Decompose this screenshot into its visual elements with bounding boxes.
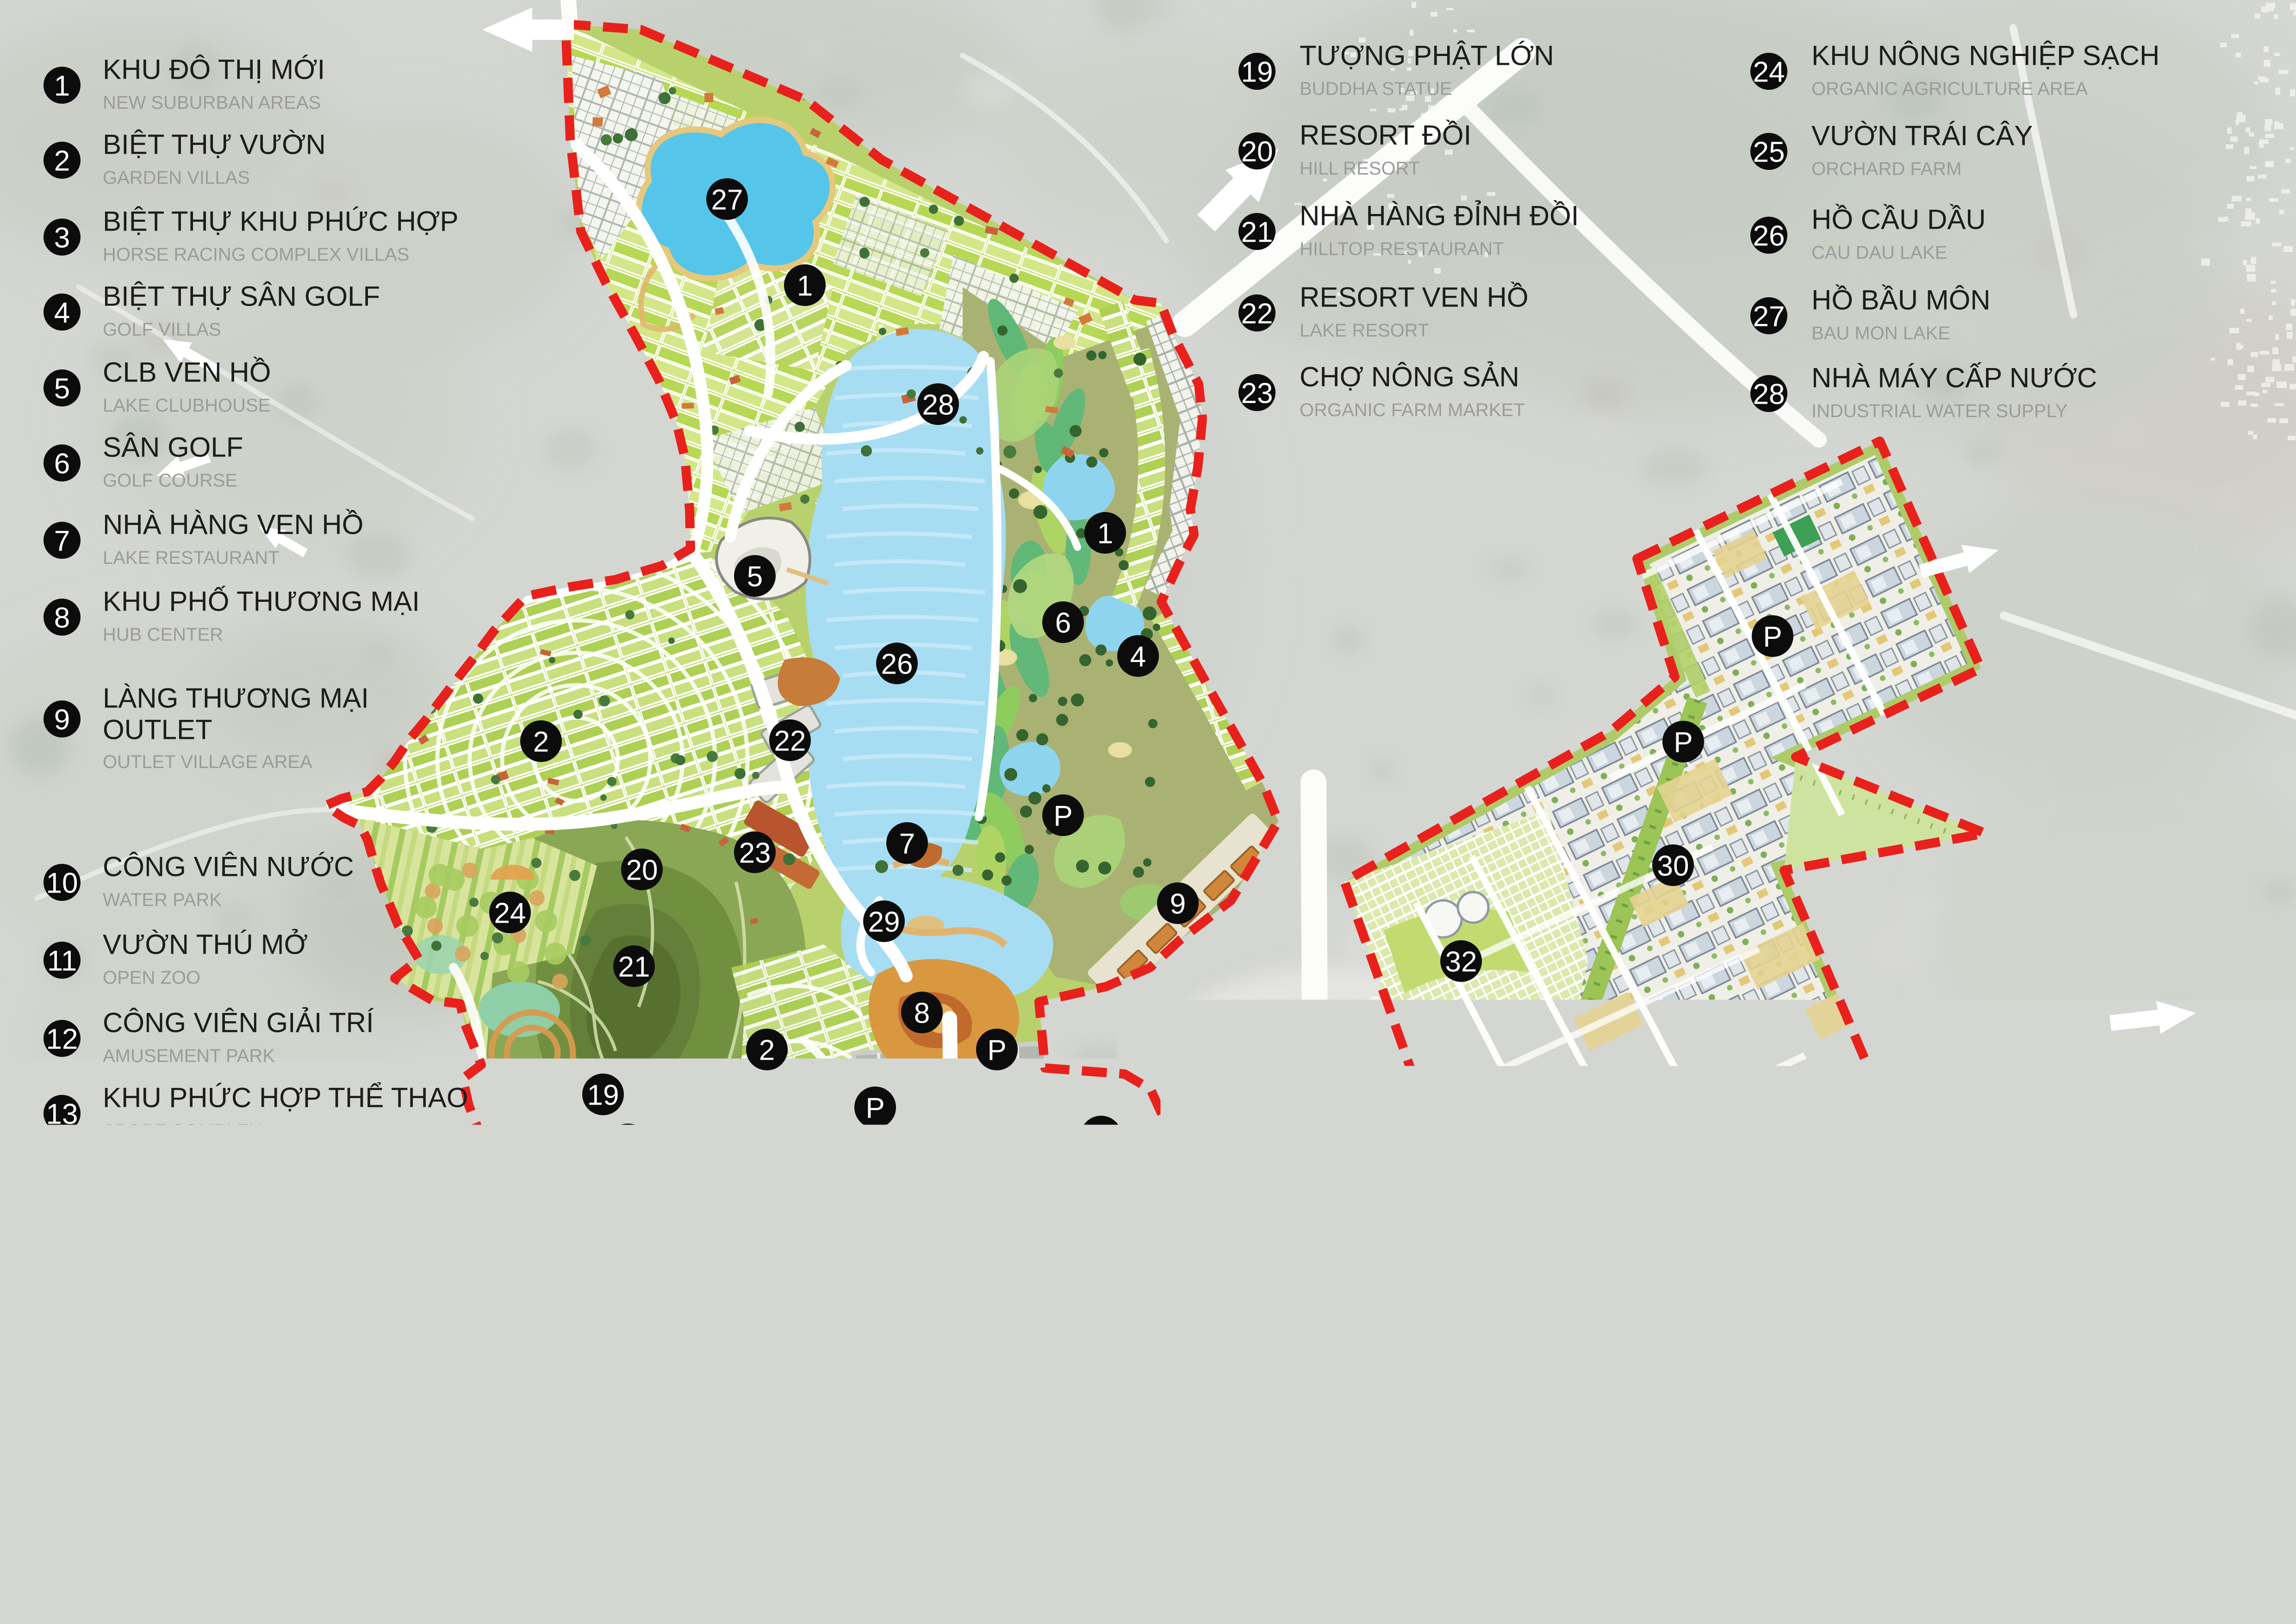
svg-text:SPORT COMPLEX: SPORT COMPLEX bbox=[103, 1121, 261, 1141]
svg-text:29: 29 bbox=[1220, 1319, 1252, 1351]
svg-text:27: 27 bbox=[711, 184, 743, 216]
svg-text:SÂN GOLF: SÂN GOLF bbox=[103, 432, 243, 463]
svg-text:VƯỜN TRÁI CÂY: VƯỜN TRÁI CÂY bbox=[1811, 120, 2033, 151]
svg-text:ORGANIC FARM MARKET: ORGANIC FARM MARKET bbox=[1300, 400, 1525, 420]
svg-text:P: P bbox=[1761, 1512, 1780, 1543]
svg-text:KHU PHỨC HỢP THỂ THAO: KHU PHỨC HỢP THỂ THAO bbox=[103, 1082, 468, 1113]
svg-text:32: 32 bbox=[1755, 1319, 1787, 1351]
svg-text:21: 21 bbox=[1241, 217, 1273, 249]
svg-text:CHUỒNG NUÔI NGỰA: CHUỒNG NUÔI NGỰA bbox=[103, 1512, 395, 1543]
svg-text:25: 25 bbox=[612, 1130, 644, 1162]
svg-text:22: 22 bbox=[1241, 298, 1273, 330]
svg-text:11: 11 bbox=[47, 945, 77, 977]
svg-text:10: 10 bbox=[46, 868, 78, 899]
svg-text:4: 4 bbox=[1130, 641, 1146, 673]
svg-text:2: 2 bbox=[533, 726, 549, 758]
svg-text:4: 4 bbox=[54, 297, 70, 329]
svg-text:16: 16 bbox=[790, 1317, 822, 1349]
svg-text:BIỆT THỰ KHU PHỨC HỢP: BIỆT THỰ KHU PHỨC HỢP bbox=[103, 206, 459, 237]
svg-text:30: 30 bbox=[610, 1453, 642, 1485]
svg-text:HORSE RACING COMPLEX VILLAS: HORSE RACING COMPLEX VILLAS bbox=[103, 244, 409, 265]
svg-text:BIỆT THỰ SÂN GOLF: BIỆT THỰ SÂN GOLF bbox=[103, 281, 380, 312]
svg-text:14: 14 bbox=[634, 1291, 666, 1323]
svg-text:8: 8 bbox=[914, 998, 930, 1030]
svg-text:P: P bbox=[666, 1518, 684, 1549]
svg-text:28: 28 bbox=[1753, 379, 1785, 411]
svg-text:30: 30 bbox=[1220, 1439, 1252, 1471]
svg-text:COMPLEX RACETRACK: COMPLEX RACETRACK bbox=[103, 1198, 313, 1218]
svg-text:33: 33 bbox=[1567, 1131, 1599, 1162]
svg-text:19: 19 bbox=[1241, 56, 1273, 88]
svg-text:P: P bbox=[865, 1093, 884, 1124]
svg-text:13: 13 bbox=[1005, 1221, 1037, 1253]
svg-text:P: P bbox=[920, 1139, 939, 1171]
svg-text:P: P bbox=[987, 1035, 1006, 1067]
svg-text:P: P bbox=[1674, 727, 1692, 759]
svg-text:10: 10 bbox=[1085, 1122, 1117, 1154]
svg-text:OUTLET VILLAGE AREA: OUTLET VILLAGE AREA bbox=[103, 752, 312, 772]
svg-text:5: 5 bbox=[54, 373, 70, 405]
svg-text:NHÀ HÀNG ĐỈNH ĐỒI: NHÀ HÀNG ĐỈNH ĐỒI bbox=[1300, 200, 1579, 231]
svg-text:33: 33 bbox=[1755, 1435, 1787, 1467]
svg-text:21: 21 bbox=[618, 951, 650, 983]
svg-text:7: 7 bbox=[54, 525, 70, 557]
svg-text:CHỢ NÔNG SẢN: CHỢ NÔNG SẢN bbox=[1300, 362, 1519, 393]
svg-text:HILL RESORT: HILL RESORT bbox=[1300, 158, 1420, 179]
svg-text:19: 19 bbox=[587, 1080, 619, 1112]
svg-text:2: 2 bbox=[759, 1035, 775, 1067]
svg-text:6: 6 bbox=[54, 448, 70, 480]
svg-text:P: P bbox=[1763, 621, 1782, 653]
svg-text:P: P bbox=[1053, 800, 1072, 832]
svg-text:CLB VEN HỒ: CLB VEN HỒ bbox=[103, 357, 271, 388]
svg-text:BUDDHA STATUE: BUDDHA STATUE bbox=[1300, 79, 1452, 99]
svg-text:15: 15 bbox=[46, 1254, 78, 1286]
svg-text:BIỆT THỰ VƯỜN: BIỆT THỰ VƯỜN bbox=[103, 129, 326, 160]
svg-text:INDUSTRIAL WATER SUPPLY: INDUSTRIAL WATER SUPPLY bbox=[1811, 401, 2067, 421]
svg-text:HỒ CẢNH QUAN LÀNG: HỒ CẢNH QUAN LÀNG bbox=[1281, 1298, 1580, 1329]
svg-text:LAKE RESTAURANT: LAKE RESTAURANT bbox=[103, 548, 280, 568]
svg-text:KHU CÔNG NGHIỆP: KHU CÔNG NGHIỆP bbox=[1281, 1421, 1545, 1452]
svg-text:24: 24 bbox=[1753, 56, 1785, 88]
svg-text:17: 17 bbox=[783, 1191, 815, 1223]
svg-text:CÔNG VIÊN GIẢI TRÍ: CÔNG VIÊN GIẢI TRÍ bbox=[103, 1007, 374, 1038]
svg-text:NHÀ MÁY CẤP NƯỚC: NHÀ MÁY CẤP NƯỚC bbox=[1811, 362, 2097, 394]
svg-text:KHU PHỐ THƯƠNG MẠI: KHU PHỐ THƯƠNG MẠI bbox=[103, 586, 420, 617]
svg-text:1: 1 bbox=[1097, 518, 1113, 550]
svg-text:15: 15 bbox=[699, 1338, 731, 1370]
svg-text:KHU NÔNG NGHIỆP SẠCH: KHU NÔNG NGHIỆP SẠCH bbox=[1811, 40, 2159, 71]
svg-text:9: 9 bbox=[54, 704, 70, 736]
svg-text:CÂU LẠC BỘ TRƯỜNG ĐUA: CÂU LẠC BỘ TRƯỜNG ĐUA bbox=[103, 1314, 471, 1345]
svg-text:LÀNG THƯƠNG MẠI: LÀNG THƯƠNG MẠI bbox=[103, 683, 369, 714]
svg-text:3: 3 bbox=[54, 222, 70, 254]
svg-text:AMUSEMENT PARK: AMUSEMENT PARK bbox=[103, 1046, 275, 1066]
svg-text:OPEN ZOO: OPEN ZOO bbox=[103, 968, 200, 988]
svg-text:22: 22 bbox=[774, 725, 806, 757]
svg-text:INDUSTRIAL PARK: INDUSTRIAL PARK bbox=[1281, 1454, 1445, 1474]
svg-text:WORKERS' DORMITORY: WORKERS' DORMITORY bbox=[1820, 1464, 2037, 1484]
svg-text:31: 31 bbox=[1491, 1103, 1523, 1135]
svg-text:BÃI XE: BÃI XE bbox=[1820, 1506, 1910, 1537]
svg-text:20: 20 bbox=[1241, 136, 1273, 168]
svg-text:CÔNG VIÊN NƯỚC: CÔNG VIÊN NƯỚC bbox=[103, 851, 354, 882]
svg-text:GOLF COURSE: GOLF COURSE bbox=[103, 470, 237, 491]
svg-text:ORGANIC AGRICULTURE AREA: ORGANIC AGRICULTURE AREA bbox=[1811, 79, 2088, 99]
svg-text:26: 26 bbox=[1753, 220, 1785, 252]
svg-text:HUB CENTER: HUB CENTER bbox=[103, 625, 223, 645]
svg-text:TƯỢNG PHẬT LỚN: TƯỢNG PHẬT LỚN bbox=[1300, 40, 1554, 71]
svg-text:P: P bbox=[1608, 1198, 1627, 1230]
svg-text:29: 29 bbox=[868, 906, 900, 938]
svg-text:1: 1 bbox=[797, 270, 813, 302]
svg-text:23: 23 bbox=[1241, 378, 1273, 410]
svg-text:CÔNG VIÊN – CÂY XANH CÁCH LY: CÔNG VIÊN – CÂY XANH CÁCH LY bbox=[1281, 1504, 1735, 1535]
svg-text:KHU ĐÔ THỊ MỚI: KHU ĐÔ THỊ MỚI bbox=[103, 54, 325, 85]
svg-text:LANDSCAPE LAKE OF COMMERCIAL A: LANDSCAPE LAKE OF COMMERCIAL AREA bbox=[1281, 1381, 1661, 1401]
svg-text:WATER PARK: WATER PARK bbox=[103, 890, 222, 910]
svg-text:HORSE RACING CLUBHOUSE: HORSE RACING CLUBHOUSE bbox=[103, 1353, 366, 1373]
svg-text:HỒ CẦU DẦU: HỒ CẦU DẦU bbox=[1811, 204, 1986, 235]
svg-text:NEW SUBURBAN AREAS: NEW SUBURBAN AREAS bbox=[103, 93, 321, 113]
svg-text:30: 30 bbox=[1657, 850, 1689, 882]
svg-text:CÙNG NGỰA CON: CÙNG NGỰA CON bbox=[103, 1436, 344, 1467]
svg-text:27: 27 bbox=[1753, 301, 1785, 333]
svg-text:PARKING: PARKING bbox=[1820, 1547, 1902, 1567]
svg-text:PARK – ISOLATED GREENERY: PARK – ISOLATED GREENERY bbox=[1281, 1541, 1549, 1561]
svg-text:P: P bbox=[909, 1395, 928, 1427]
svg-text:BAU MON LAKE: BAU MON LAKE bbox=[1811, 323, 1950, 344]
svg-text:13: 13 bbox=[46, 1099, 78, 1131]
svg-text:24: 24 bbox=[494, 898, 526, 930]
svg-text:20: 20 bbox=[626, 855, 658, 887]
svg-text:KHU PHÁT TRIỂN THƯƠNG MẠI: KHU PHÁT TRIỂN THƯƠNG MẠI bbox=[1820, 1298, 2241, 1329]
svg-text:18: 18 bbox=[46, 1528, 78, 1560]
svg-text:17: 17 bbox=[46, 1425, 78, 1457]
svg-text:RESORT VEN HỒ: RESORT VEN HỒ bbox=[1300, 282, 1529, 313]
svg-text:12: 12 bbox=[1123, 1259, 1155, 1291]
svg-text:HORSE TRAINING: HORSE TRAINING bbox=[103, 1276, 262, 1296]
svg-text:HILLTOP RESTAURANT: HILLTOP RESTAURANT bbox=[1300, 239, 1504, 259]
svg-text:HỒ BẦU MÔN: HỒ BẦU MÔN bbox=[1811, 285, 1991, 316]
svg-text:26: 26 bbox=[881, 649, 913, 681]
svg-text:1: 1 bbox=[54, 70, 70, 102]
svg-text:16: 16 bbox=[46, 1330, 78, 1362]
svg-text:5: 5 bbox=[747, 561, 763, 593]
svg-text:LAKE RESORT: LAKE RESORT bbox=[1300, 320, 1429, 341]
svg-text:6: 6 bbox=[1055, 607, 1071, 639]
svg-text:KHU Ở CÔNG NHÂN: KHU Ở CÔNG NHÂN bbox=[1820, 1421, 2088, 1452]
svg-text:THƯƠNG MẠI: THƯƠNG MẠI bbox=[1281, 1329, 1464, 1360]
svg-text:11: 11 bbox=[1133, 1197, 1163, 1229]
svg-text:LAKE CLUBHOUSE: LAKE CLUBHOUSE bbox=[103, 395, 270, 416]
svg-text:NHÀ HÀNG VEN HỒ: NHÀ HÀNG VEN HỒ bbox=[103, 509, 363, 540]
svg-text:RESORT ĐỒI: RESORT ĐỒI bbox=[1300, 120, 1471, 151]
svg-text:ĐƯỜNG ĐUA PHỨC HỢP: ĐƯỜNG ĐUA PHỨC HỢP bbox=[103, 1159, 437, 1190]
svg-text:VƯỜN THÚ MỞ: VƯỜN THÚ MỞ bbox=[103, 929, 308, 960]
svg-text:14: 14 bbox=[46, 1175, 78, 1207]
svg-text:ORCHARD FARM: ORCHARD FARM bbox=[1811, 159, 1961, 179]
svg-text:2: 2 bbox=[54, 145, 70, 177]
svg-text:12: 12 bbox=[46, 1024, 78, 1056]
svg-text:GARDEN VILLAS: GARDEN VILLAS bbox=[103, 168, 250, 188]
svg-text:7: 7 bbox=[899, 828, 915, 860]
svg-text:32: 32 bbox=[1445, 946, 1477, 978]
svg-text:23: 23 bbox=[739, 837, 771, 869]
svg-text:9: 9 bbox=[1170, 888, 1186, 920]
svg-text:KHU CÔNG NGHIỆP: KHU CÔNG NGHIỆP bbox=[1820, 1329, 2084, 1360]
svg-text:PONY PLAYGROUND: PONY PLAYGROUND bbox=[103, 1473, 288, 1493]
svg-text:OUTLET: OUTLET bbox=[103, 714, 212, 745]
svg-text:SÂN TẬP CƯỠI NGỰA: SÂN TẬP CƯỠI NGỰA bbox=[103, 1237, 395, 1268]
svg-text:28: 28 bbox=[922, 389, 954, 421]
svg-text:31: 31 bbox=[1220, 1514, 1252, 1546]
svg-text:KHU VUI CHƠI: KHU VUI CHƠI bbox=[103, 1404, 295, 1435]
svg-text:CAU DAU LAKE: CAU DAU LAKE bbox=[1811, 243, 1947, 263]
svg-text:25: 25 bbox=[1753, 137, 1785, 169]
svg-text:HORSE STABLE: HORSE STABLE bbox=[103, 1550, 243, 1570]
svg-text:18: 18 bbox=[473, 1287, 505, 1319]
svg-text:3: 3 bbox=[637, 1233, 653, 1265]
svg-text:8: 8 bbox=[54, 602, 70, 634]
svg-text:INDUSTRIAL COMMERCIAL DEVELOPM: INDUSTRIAL COMMERCIAL DEVELOPMENT AREA bbox=[1820, 1381, 2259, 1401]
svg-text:GOLF VILLAS: GOLF VILLAS bbox=[103, 319, 221, 340]
